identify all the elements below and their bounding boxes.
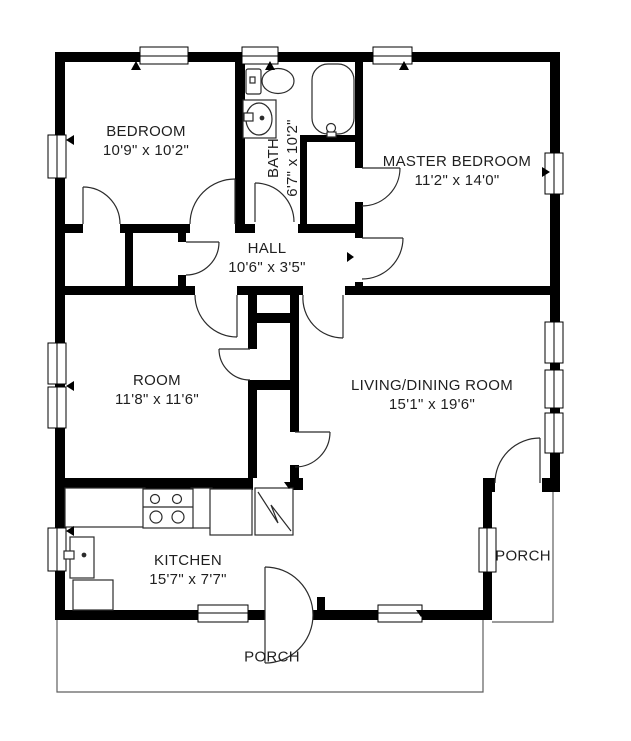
room-name: BATH xyxy=(264,119,283,197)
floor-plan-drawing xyxy=(0,0,631,741)
door-bedroom-a xyxy=(83,187,120,224)
window-porch-left xyxy=(479,528,496,572)
door-living-closet xyxy=(295,432,330,467)
room-name: LIVING/DINING ROOM xyxy=(351,376,513,395)
wall-closet-divider-b xyxy=(257,380,290,390)
room-dims: 15'1" x 19'6" xyxy=(351,395,513,414)
wall-top xyxy=(55,52,560,62)
room-name: KITCHEN xyxy=(149,551,227,570)
window-room-left-a xyxy=(48,343,66,384)
room-dims: 11'8" x 11'6" xyxy=(115,390,199,409)
room-name: MASTER BEDROOM xyxy=(383,152,531,171)
door-living-hall xyxy=(303,295,343,338)
door-master-b xyxy=(362,238,403,279)
window-master-top xyxy=(373,47,412,64)
wall-stub-bottom xyxy=(317,597,325,612)
room-label-room: ROOM 11'8" x 11'6" xyxy=(115,371,199,409)
window-living-right-c xyxy=(545,413,563,453)
room-name: PORCH xyxy=(495,547,551,566)
window-kitchen-left xyxy=(48,528,66,571)
room-name: PORCH xyxy=(244,648,300,667)
room-name: HALL xyxy=(228,239,306,258)
room-label-bedroom: BEDROOM 10'9" x 10'2" xyxy=(103,122,189,160)
room-dims: 11'2" x 14'0" xyxy=(383,171,531,190)
wall-room-right xyxy=(248,295,257,478)
room-dims: 6'7" x 10'2" xyxy=(283,119,302,197)
stove xyxy=(143,489,193,528)
room-name: ROOM xyxy=(115,371,199,390)
room-label-master-bedroom: MASTER BEDROOM 11'2" x 14'0" xyxy=(383,152,531,190)
room-label-living-dining: LIVING/DINING ROOM 15'1" x 19'6" xyxy=(351,376,513,414)
kitchen-sink xyxy=(64,537,94,578)
refrigerator xyxy=(210,489,252,535)
floor-plan: BEDROOM 10'9" x 10'2" BATH 6'7" x 10'2" … xyxy=(0,0,631,741)
room-label-kitchen: KITCHEN 15'7" x 7'7" xyxy=(149,551,227,589)
window-kitchen-bottom xyxy=(198,605,248,622)
room-label-porch-bottom: PORCH xyxy=(244,648,300,667)
toilet xyxy=(246,69,294,95)
wall-closet-divider xyxy=(125,233,133,286)
door-room-hall xyxy=(195,295,237,337)
window-room-left-b xyxy=(48,387,66,428)
window-master-right xyxy=(545,153,563,194)
room-label-bath: BATH 6'7" x 10'2" xyxy=(264,119,302,197)
wall-bedroom-bath xyxy=(235,52,245,233)
kitchen-pantry xyxy=(73,580,113,610)
room-dims: 15'7" x 7'7" xyxy=(149,570,227,589)
window-living-right-a xyxy=(545,322,563,363)
wall-closet-divider-a xyxy=(257,313,290,323)
window-living-bottom xyxy=(378,605,422,622)
room-dims: 10'6" x 3'5" xyxy=(228,258,306,277)
bathtub xyxy=(312,64,354,137)
window-bedroom-top xyxy=(140,47,188,64)
door-living-porch xyxy=(495,438,540,483)
room-dims: 10'9" x 10'2" xyxy=(103,141,189,160)
room-label-hall: HALL 10'6" x 3'5" xyxy=(228,239,306,277)
room-label-porch-right: PORCH xyxy=(495,547,551,566)
door-hall-closet xyxy=(186,242,219,275)
window-living-right-b xyxy=(545,370,563,408)
window-bath-top xyxy=(242,47,278,64)
utility-closet xyxy=(255,488,293,535)
door-room-closet xyxy=(219,349,250,380)
window-bedroom-left xyxy=(48,135,66,178)
door-bedroom-b xyxy=(190,179,235,224)
room-name: BEDROOM xyxy=(103,122,189,141)
